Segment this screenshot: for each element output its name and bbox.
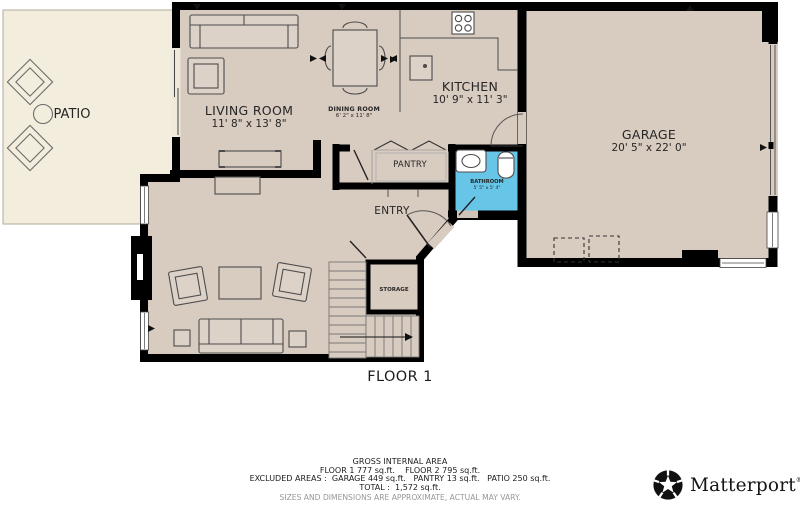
garage-name: GARAGE: [611, 128, 686, 142]
registered-mark: ®: [796, 477, 800, 484]
family-room-armchair-left: [168, 266, 207, 305]
garage-overhead-door: [767, 44, 778, 196]
kitchen-label: KITCHEN 10' 9" x 11' 3": [432, 80, 507, 106]
refrigerator: [410, 56, 432, 80]
dining-room-label: DINING ROOM 6' 2" x 11' 8": [328, 106, 380, 120]
patio-table: [34, 105, 53, 124]
dining-room-name: DINING ROOM: [328, 106, 380, 113]
stove: [452, 12, 474, 34]
garage-label: GARAGE 20' 5" x 22' 0": [611, 128, 686, 154]
pantry-label: PANTRY: [393, 161, 427, 171]
garage-corner-wall: [762, 2, 778, 42]
garage-dims: 20' 5" x 22' 0": [611, 142, 686, 154]
living-room-dims: 11' 8" x 13' 8": [205, 118, 293, 130]
family-room-armchair-right: [272, 262, 311, 301]
floor-title: FLOOR 1: [367, 369, 432, 386]
family-room-window-upper: [141, 186, 149, 224]
bathroom-label: BATHROOM 5' 5" x 5' 4": [470, 180, 503, 191]
patio-sliding-door: [172, 48, 181, 137]
garage-side-window: [767, 212, 778, 248]
living-room-sofa: [190, 15, 298, 48]
dining-table: [325, 22, 385, 94]
patio-label: PATIO: [54, 108, 91, 123]
floorplan-page: PATIO LIVING ROOM 11' 8" x 13' 8" DINING…: [0, 0, 800, 509]
kitchen-dims: 10' 9" x 11' 3": [432, 94, 507, 106]
area-summary: GROSS INTERNAL AREA FLOOR 1 777 sq.ft. F…: [250, 458, 551, 502]
dining-room-dims: 6' 2" x 11' 8": [328, 113, 380, 119]
family-room-sofa: [199, 319, 283, 353]
kitchen-name: KITCHEN: [432, 80, 507, 94]
bathroom-dims: 5' 5" x 5' 4": [470, 186, 503, 191]
matterport-logo: Matterport®: [652, 469, 800, 501]
matterport-name: Matterport: [690, 475, 796, 496]
living-room-name: LIVING ROOM: [205, 104, 293, 118]
bathroom-sink: [456, 150, 486, 172]
storage-label: STORAGE: [379, 287, 408, 293]
matterport-icon: [652, 469, 684, 501]
side-table-right: [289, 331, 306, 347]
family-room-window-lower: [141, 312, 149, 350]
side-table-left: [174, 330, 190, 346]
family-room-console: [215, 177, 260, 194]
coffee-table: [219, 267, 261, 299]
matterport-wordmark: Matterport®: [690, 475, 800, 496]
garage-rear-window: [720, 259, 766, 268]
garage-wall-pier: [682, 250, 718, 266]
fireplace: [131, 236, 152, 300]
entry-label: ENTRY: [374, 205, 409, 217]
disclaimer: SIZES AND DIMENSIONS ARE APPROXIMATE, AC…: [250, 494, 551, 502]
toilet: [498, 152, 514, 178]
tv-console: [219, 151, 281, 167]
total-area: TOTAL : 1,572 sq.ft.: [250, 484, 551, 493]
living-room-armchair: [188, 58, 224, 94]
living-room-label: LIVING ROOM 11' 8" x 13' 8": [205, 104, 293, 130]
